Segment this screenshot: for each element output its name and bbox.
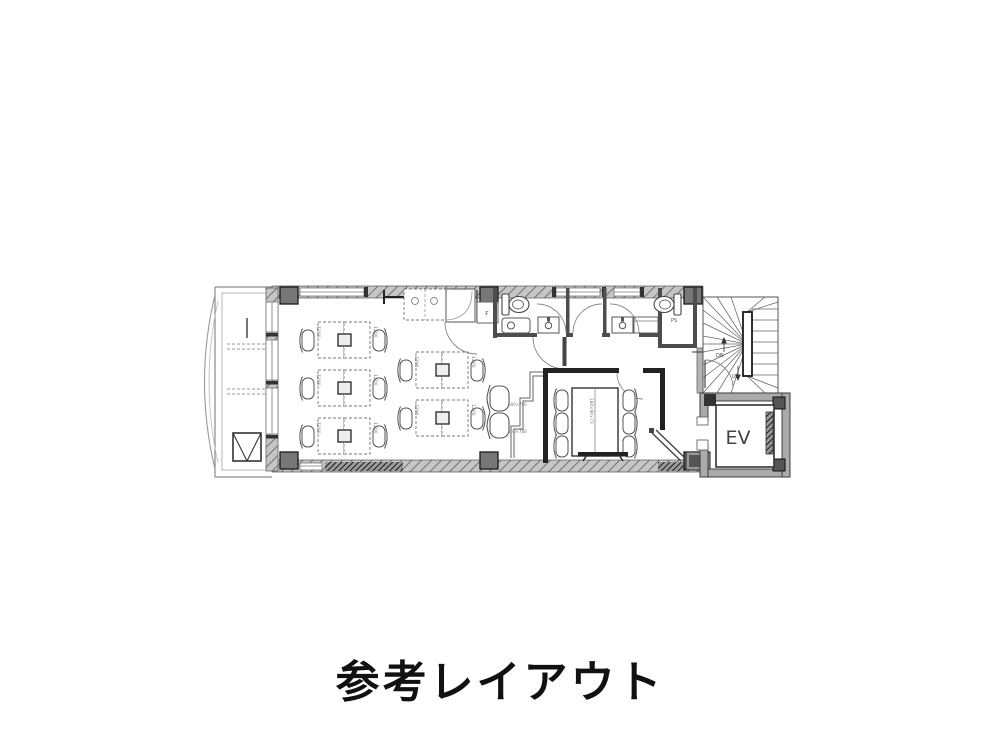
desk-cluster-right: 1200 1200 1200 1200 — [398, 352, 485, 436]
desk-size-label: 1200 — [413, 404, 419, 416]
desk-size-label: 1200 — [372, 374, 378, 386]
balcony — [205, 287, 273, 477]
plan-title: 参考レイアウト — [0, 646, 1000, 710]
entrance-hatch-band — [658, 462, 686, 471]
monitor-stand — [578, 452, 628, 461]
sofa-size-label: 600×780 — [508, 429, 527, 434]
stair-wall — [697, 348, 703, 393]
entrance-door — [649, 428, 685, 461]
chair — [300, 377, 314, 401]
desk-size-label: 1200 — [315, 422, 321, 434]
lounge-chair — [487, 385, 509, 412]
toilet-area: PS — [493, 288, 697, 369]
washbasin — [612, 317, 633, 333]
chair — [554, 389, 568, 413]
desk-size-label: 1200 — [372, 422, 378, 434]
desk-size-label: 1200 — [315, 326, 321, 338]
desk-size-label: 1200 — [315, 374, 321, 386]
elevator: EV — [697, 393, 790, 477]
roof-hatch-symbol — [233, 433, 261, 461]
desk-size-label: 1200 — [470, 356, 476, 368]
sofa-size-label: 600×780 — [508, 402, 527, 407]
corridor-door — [533, 337, 567, 369]
table-size-label: 180×90×73 — [589, 398, 594, 424]
elevator-door — [766, 412, 773, 454]
chair — [300, 329, 314, 353]
chair — [554, 412, 568, 436]
chair — [300, 425, 314, 449]
chair — [398, 359, 412, 383]
chair — [623, 389, 637, 413]
stairs: DN UP — [703, 297, 778, 393]
floor-plan-page: 1200 1200 1200 1200 1200 1200 1200 12 — [0, 0, 1000, 750]
desk-cluster-left: 1200 1200 1200 1200 1200 1200 — [300, 322, 387, 454]
door-arc — [445, 322, 477, 354]
pipe-shaft-label: PS — [671, 318, 677, 324]
desk-size-label: 1200 — [413, 356, 419, 368]
office-area: 1200 1200 1200 1200 1200 1200 1200 12 — [300, 322, 485, 454]
washbasin — [538, 317, 559, 333]
balcony-curved-edge — [205, 295, 216, 469]
floor-plan-drawing: 1200 1200 1200 1200 1200 1200 1200 12 — [0, 0, 1000, 750]
desk-size-label: 1200 — [470, 404, 476, 416]
mop-sink — [502, 318, 530, 333]
corner-column — [704, 394, 716, 406]
cabinet — [446, 289, 475, 322]
lounge-chair — [487, 412, 509, 439]
balcony-hatch-lines — [227, 344, 268, 394]
elevator-label: EV — [725, 427, 750, 449]
chair — [554, 435, 568, 459]
chair — [398, 407, 412, 431]
refrigerator-label: F — [485, 310, 489, 318]
stairs-up-label: UP — [732, 374, 739, 380]
door-jambs — [697, 417, 708, 450]
stair-newel — [743, 312, 752, 376]
desk-size-label: 1200 — [372, 326, 378, 338]
bottom-wall-hatch-band — [325, 462, 403, 471]
folding-partition — [511, 372, 543, 458]
stairs-down-label: DN — [716, 353, 724, 359]
meeting-room: 600×780 600×780 180×90×73 — [487, 368, 665, 463]
chair — [623, 412, 637, 436]
